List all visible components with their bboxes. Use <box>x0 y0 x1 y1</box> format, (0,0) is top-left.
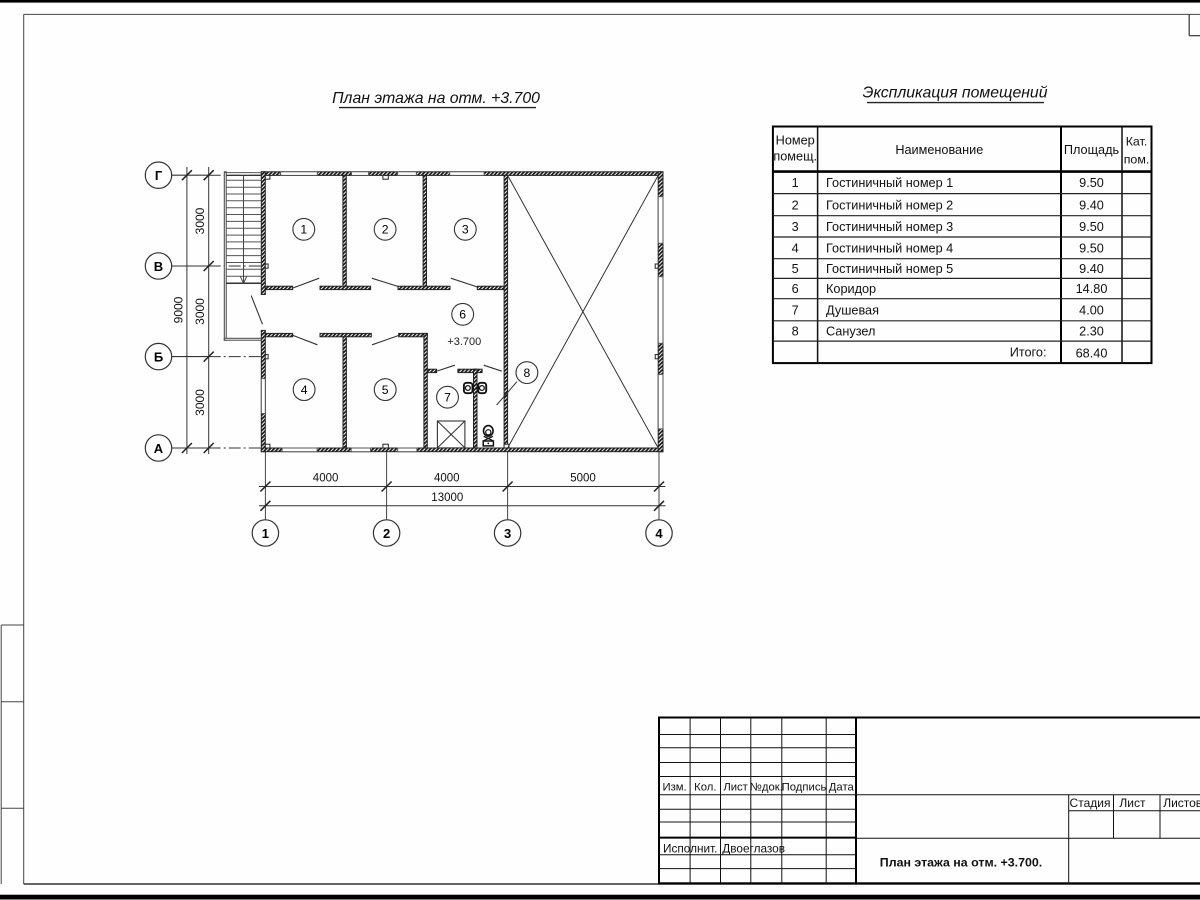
svg-text:Номер: Номер <box>776 134 815 148</box>
svg-text:Лист: Лист <box>723 781 748 793</box>
svg-text:Душевая: Душевая <box>826 303 879 317</box>
svg-text:9000: 9000 <box>172 296 186 323</box>
svg-text:Стадия: Стадия <box>1070 796 1111 810</box>
svg-text:№док.: №док. <box>750 781 783 793</box>
svg-text:8: 8 <box>792 325 799 339</box>
svg-text:Гостиничный номер 4: Гостиничный номер 4 <box>826 241 953 255</box>
svg-text:Листов: Листов <box>1163 796 1200 810</box>
svg-text:14.80: 14.80 <box>1076 282 1108 296</box>
svg-text:3: 3 <box>504 526 511 541</box>
svg-text:В: В <box>154 259 163 274</box>
svg-text:13000: 13000 <box>431 492 463 504</box>
svg-text:Дата: Дата <box>829 781 855 793</box>
svg-text:План этажа на отм. +3.700.: План этажа на отм. +3.700. <box>880 855 1042 869</box>
svg-text:7: 7 <box>792 303 799 317</box>
svg-text:Двоеглазов: Двоеглазов <box>722 841 785 855</box>
svg-text:4: 4 <box>655 526 663 541</box>
svg-text:Подпись: Подпись <box>782 781 827 793</box>
svg-text:Гостиничный номер 5: Гостиничный номер 5 <box>826 262 953 276</box>
svg-text:4: 4 <box>792 241 799 255</box>
svg-text:Исполнит.: Исполнит. <box>663 841 717 855</box>
svg-text:Г: Г <box>155 168 163 183</box>
svg-text:2: 2 <box>792 198 799 212</box>
svg-text:Лист: Лист <box>1119 796 1146 810</box>
svg-text:68.40: 68.40 <box>1076 346 1108 360</box>
svg-text:6: 6 <box>792 282 799 296</box>
svg-text:Гостиничный номер 3: Гостиничный номер 3 <box>826 220 953 234</box>
svg-text:5000: 5000 <box>570 473 596 485</box>
svg-text:1: 1 <box>792 176 799 190</box>
svg-text:3000: 3000 <box>193 298 207 325</box>
svg-text:3000: 3000 <box>193 389 207 416</box>
svg-text:7: 7 <box>444 391 451 405</box>
svg-text:Экспликация помещений: Экспликация помещений <box>862 85 1047 102</box>
svg-text:9.50: 9.50 <box>1079 220 1104 234</box>
svg-text:Гостиничный номер 2: Гостиничный номер 2 <box>826 198 953 212</box>
svg-text:3: 3 <box>792 220 799 234</box>
svg-text:4: 4 <box>301 383 308 397</box>
svg-text:3000: 3000 <box>193 207 207 234</box>
svg-text:пом.: пом. <box>1124 153 1150 167</box>
svg-text:Кол.: Кол. <box>694 781 716 793</box>
svg-text:помещ.: помещ. <box>773 150 817 164</box>
svg-text:1: 1 <box>300 223 307 237</box>
svg-text:Изм.: Изм. <box>662 781 686 793</box>
svg-text:2.30: 2.30 <box>1079 325 1104 339</box>
svg-text:+3.700: +3.700 <box>447 336 481 348</box>
svg-text:А: А <box>154 441 164 456</box>
svg-text:9.40: 9.40 <box>1079 262 1104 276</box>
svg-text:4000: 4000 <box>434 473 460 485</box>
svg-text:4.00: 4.00 <box>1079 303 1104 317</box>
svg-text:1: 1 <box>262 526 269 541</box>
svg-text:Площадь: Площадь <box>1064 143 1120 157</box>
svg-text:8: 8 <box>524 366 531 380</box>
svg-text:9.50: 9.50 <box>1079 241 1104 255</box>
svg-text:Гостиничный номер 1: Гостиничный номер 1 <box>826 176 953 190</box>
svg-text:Наименование: Наименование <box>895 143 983 157</box>
svg-text:3: 3 <box>462 223 469 237</box>
svg-text:2: 2 <box>382 223 389 237</box>
svg-text:5: 5 <box>382 383 389 397</box>
svg-text:5: 5 <box>792 262 799 276</box>
svg-text:Б: Б <box>154 349 163 364</box>
svg-text:Коридор: Коридор <box>826 282 876 296</box>
svg-text:Кат.: Кат. <box>1126 135 1148 149</box>
svg-text:9.50: 9.50 <box>1079 176 1104 190</box>
svg-text:9.40: 9.40 <box>1079 198 1104 212</box>
svg-text:6: 6 <box>459 308 466 322</box>
svg-text:2: 2 <box>383 526 390 541</box>
svg-text:План этажа на отм. +3.700: План этажа на отм. +3.700 <box>332 90 540 107</box>
svg-text:Итого:: Итого: <box>1010 345 1047 359</box>
svg-text:4000: 4000 <box>313 473 339 485</box>
svg-text:Санузел: Санузел <box>826 325 875 339</box>
